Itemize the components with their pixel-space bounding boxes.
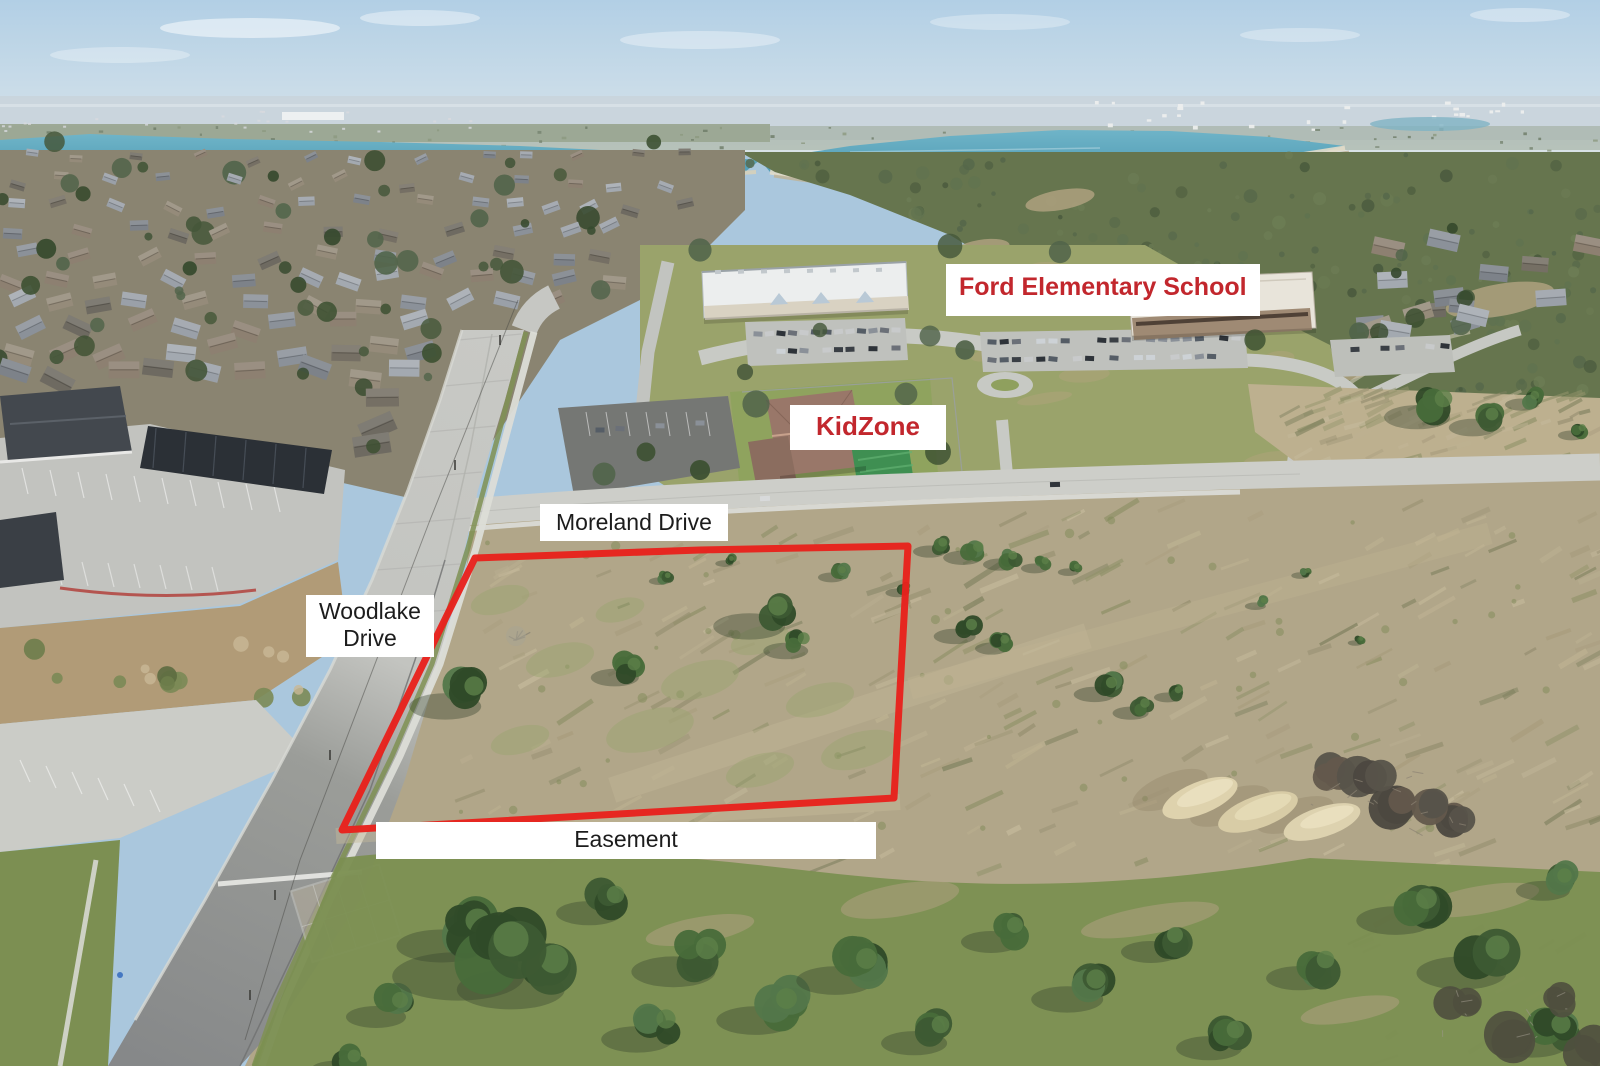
street-label-moreland-drive: Moreland Drive <box>540 504 728 541</box>
street-label-woodlake-drive: Woodlake Drive <box>306 595 434 657</box>
street-label-woodlake-line2: Drive <box>319 625 421 652</box>
label-easement: Easement <box>376 822 876 859</box>
label-ford-elementary-school: Ford Elementary School <box>946 264 1260 316</box>
label-kidzone: KidZone <box>790 405 946 450</box>
photo-painting <box>0 0 1600 1066</box>
aerial-photo-canvas <box>0 0 1600 1066</box>
street-label-woodlake-line1: Woodlake <box>319 598 421 625</box>
aerial-photo: Ford Elementary School KidZone Moreland … <box>0 0 1600 1066</box>
